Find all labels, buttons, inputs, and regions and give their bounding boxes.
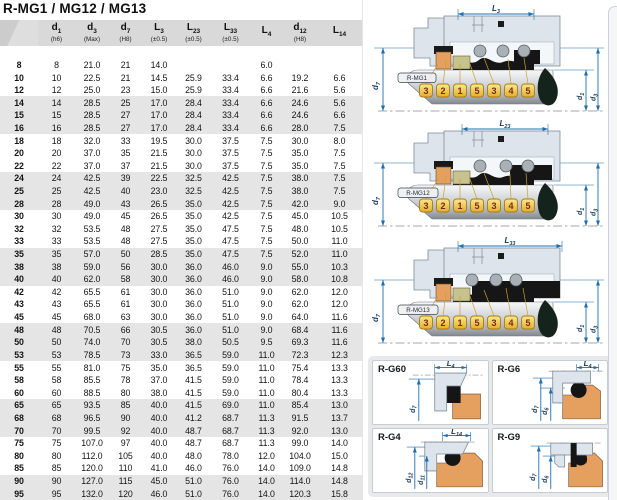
dimension-d7: d7 bbox=[529, 446, 540, 489]
cell-d7: 70 bbox=[109, 337, 142, 347]
cell-d1: 22 bbox=[38, 161, 75, 171]
cell-d7: 37 bbox=[109, 161, 142, 171]
cell-L33: 69.0 bbox=[211, 400, 250, 410]
cell-d1: 14 bbox=[38, 98, 75, 108]
cell-L23: 32.5 bbox=[176, 173, 211, 183]
cell-L33: 33.4 bbox=[211, 73, 250, 83]
col-header-size bbox=[0, 20, 38, 46]
col-header-L3: L3(±0.5) bbox=[142, 20, 176, 46]
cell-L33: 68.7 bbox=[211, 438, 250, 448]
table-row: 75 75 107.0 97 40.0 48.7 68.7 11.3 99.0 … bbox=[0, 437, 362, 450]
cell-L23: 36.0 bbox=[176, 312, 211, 322]
cell-L33: 78.0 bbox=[211, 451, 250, 461]
cell-L33: 47.5 bbox=[211, 236, 250, 246]
cell-L14: 6.6 bbox=[317, 73, 362, 83]
cell-L33: 68.7 bbox=[211, 426, 250, 436]
cell-size: 15 bbox=[0, 110, 38, 120]
cell-L14: 10.5 bbox=[317, 224, 362, 234]
cell-size: 25 bbox=[0, 186, 38, 196]
cell-L4: 9.0 bbox=[250, 312, 283, 322]
svg-text:1: 1 bbox=[457, 86, 462, 96]
cell-d3: 70.5 bbox=[75, 325, 109, 335]
cell-d7: 56 bbox=[109, 262, 142, 272]
svg-text:d12: d12 bbox=[406, 473, 415, 483]
cell-L14: 14.8 bbox=[317, 476, 362, 486]
cell-L4: 11.3 bbox=[250, 426, 283, 436]
svg-text:R-MG12: R-MG12 bbox=[406, 190, 430, 197]
cell-L14: 13.0 bbox=[317, 426, 362, 436]
dimension-d6: d6 bbox=[541, 388, 552, 421]
model-label: R-MG13 bbox=[398, 305, 438, 315]
cell-L4: 6.6 bbox=[250, 110, 283, 120]
table-row: 70 70 99.5 92 40.0 48.7 68.7 11.3 92.0 1… bbox=[0, 424, 362, 437]
cell-L14: 14.8 bbox=[317, 463, 362, 473]
cell-L23: 36.5 bbox=[176, 350, 211, 360]
cell-d12: 62.0 bbox=[283, 299, 317, 309]
cell-L14: 15.0 bbox=[317, 451, 362, 461]
table-row: 53 53 78.5 73 33.0 36.5 59.0 11.0 72.3 1… bbox=[0, 349, 362, 362]
cell-d1: 75 bbox=[38, 438, 75, 448]
cell-size: 18 bbox=[0, 136, 38, 146]
cell-L14: 6.6 bbox=[317, 110, 362, 120]
cell-size: 12 bbox=[0, 85, 38, 95]
cell-L4: 9.5 bbox=[250, 337, 283, 347]
cell-d7: 105 bbox=[109, 451, 142, 461]
cell-L14: 13.3 bbox=[317, 363, 362, 373]
cell-L33: 59.0 bbox=[211, 388, 250, 398]
cell-d7: 27 bbox=[109, 110, 142, 120]
cell-L14: 12.0 bbox=[317, 287, 362, 297]
svg-text:1: 1 bbox=[457, 201, 462, 211]
table-body: 8 8 21.0 21 14.0 6.0 10 10 22.5 21 14.5 … bbox=[0, 46, 362, 500]
svg-text:5: 5 bbox=[525, 318, 530, 328]
svg-text:3: 3 bbox=[423, 201, 428, 211]
svg-text:d7: d7 bbox=[529, 473, 538, 481]
cell-d1: 45 bbox=[38, 312, 75, 322]
cell-d3: 127.0 bbox=[75, 476, 109, 486]
cell-d7: 75 bbox=[109, 363, 142, 373]
cell-L23: 25.9 bbox=[176, 85, 211, 95]
cell-d7: 73 bbox=[109, 350, 142, 360]
cell-d1: 50 bbox=[38, 337, 75, 347]
cell-L3: 23.0 bbox=[142, 186, 176, 196]
cell-L4: 7.5 bbox=[250, 211, 283, 221]
cell-L23: 41.5 bbox=[176, 388, 211, 398]
cell-L4: 9.0 bbox=[250, 299, 283, 309]
svg-text:5: 5 bbox=[474, 86, 479, 96]
cell-L23: 41.5 bbox=[176, 400, 211, 410]
cell-L14: 13.3 bbox=[317, 375, 362, 385]
cell-d1: 65 bbox=[38, 400, 75, 410]
dimension-L4: L4 bbox=[435, 361, 467, 373]
svg-text:L4: L4 bbox=[447, 361, 455, 370]
cell-L23: 41.5 bbox=[176, 375, 211, 385]
cell-d3: 57.0 bbox=[75, 249, 109, 259]
svg-text:L33: L33 bbox=[504, 236, 515, 247]
cell-d3: 68.0 bbox=[75, 312, 109, 322]
cell-L14: 12.3 bbox=[317, 350, 362, 360]
cell-d3: 93.5 bbox=[75, 400, 109, 410]
svg-text:1: 1 bbox=[457, 318, 462, 328]
cell-L3: 17.0 bbox=[142, 123, 176, 133]
seat-ring bbox=[436, 52, 451, 69]
diagram-column: L3 d7 d1 d3 3 2 1 5 3 bbox=[362, 0, 617, 500]
cell-L3: 30.0 bbox=[142, 262, 176, 272]
cell-L23: 36.0 bbox=[176, 299, 211, 309]
cell-L33: 33.4 bbox=[211, 85, 250, 95]
table-row: 32 32 53.5 48 27.5 35.0 47.5 7.5 48.0 10… bbox=[0, 223, 362, 236]
r-g6-card: R-G6 L4 bbox=[492, 360, 609, 425]
cell-L23: 30.0 bbox=[176, 136, 211, 146]
cell-d3: 65.5 bbox=[75, 287, 109, 297]
table-row: 25 25 42.5 40 23.0 32.5 42.5 7.5 38.0 7.… bbox=[0, 185, 362, 198]
svg-text:d1: d1 bbox=[577, 325, 586, 332]
cell-d12: 58.0 bbox=[283, 274, 317, 284]
cell-L4: 11.3 bbox=[250, 438, 283, 448]
cell-L14: 11.0 bbox=[317, 249, 362, 259]
cell-L33: 59.0 bbox=[211, 350, 250, 360]
cell-L3: 14.0 bbox=[142, 60, 176, 70]
cell-L23: 48.7 bbox=[176, 426, 211, 436]
cell-d12: 35.0 bbox=[283, 161, 317, 171]
cell-L3: 21.5 bbox=[142, 148, 176, 158]
r-mg13-cross-section-diagram: L33 d7 d1 d3 3 2 1 5 3 bbox=[368, 236, 610, 350]
cell-L23: 36.0 bbox=[176, 287, 211, 297]
svg-text:d7: d7 bbox=[531, 405, 540, 413]
cell-L4: 7.5 bbox=[250, 199, 283, 209]
cell-d12: 38.0 bbox=[283, 173, 317, 183]
cell-L4: 6.0 bbox=[250, 60, 283, 70]
cell-d7: 23 bbox=[109, 85, 142, 95]
cell-d7: 78 bbox=[109, 375, 142, 385]
cell-d12: 62.0 bbox=[283, 287, 317, 297]
cell-d12: 52.0 bbox=[283, 249, 317, 259]
table-row: 55 55 81.0 75 35.0 36.5 59.0 11.0 75.4 1… bbox=[0, 361, 362, 374]
cell-d7: 63 bbox=[109, 312, 142, 322]
cell-d1: 12 bbox=[38, 85, 75, 95]
cell-d3: 120.0 bbox=[75, 463, 109, 473]
cell-d7: 92 bbox=[109, 426, 142, 436]
cell-L3: 30.5 bbox=[142, 325, 176, 335]
cell-d3: 28.5 bbox=[75, 123, 109, 133]
cell-d12: 78.4 bbox=[283, 375, 317, 385]
svg-text:2: 2 bbox=[440, 318, 445, 328]
cell-d1: 95 bbox=[38, 489, 75, 499]
cell-d7: 21 bbox=[109, 73, 142, 83]
cell-d1: 8 bbox=[38, 60, 75, 70]
svg-text:d1: d1 bbox=[577, 93, 586, 100]
cell-d7: 33 bbox=[109, 136, 142, 146]
cell-d7: 40 bbox=[109, 186, 142, 196]
cell-L3: 40.0 bbox=[142, 451, 176, 461]
cell-L4: 6.6 bbox=[250, 98, 283, 108]
cell-d7: 85 bbox=[109, 400, 142, 410]
cell-L4: 7.5 bbox=[250, 136, 283, 146]
col-header-d1: d1(h6) bbox=[38, 20, 75, 46]
cell-L23: 35.0 bbox=[176, 236, 211, 246]
cell-d3: 59.0 bbox=[75, 262, 109, 272]
cell-size: 24 bbox=[0, 173, 38, 183]
cell-L3: 30.0 bbox=[142, 274, 176, 284]
cell-size: 70 bbox=[0, 426, 38, 436]
svg-text:L23: L23 bbox=[499, 119, 510, 130]
dimension-d7: d7 bbox=[410, 379, 421, 421]
cell-L4: 11.0 bbox=[250, 363, 283, 373]
table-row: 20 20 37.0 35 21.5 30.0 37.5 7.5 35.0 7.… bbox=[0, 147, 362, 160]
cell-L14: 12.0 bbox=[317, 299, 362, 309]
cell-d12: 68.4 bbox=[283, 325, 317, 335]
cell-size: 55 bbox=[0, 363, 38, 373]
cell-L23: 48.0 bbox=[176, 451, 211, 461]
seal-face bbox=[453, 56, 470, 69]
cell-d1: 80 bbox=[38, 451, 75, 461]
cell-L33: 37.5 bbox=[211, 136, 250, 146]
cell-size: 50 bbox=[0, 337, 38, 347]
cell-L4: 12.0 bbox=[250, 451, 283, 461]
cell-L14: 7.5 bbox=[317, 123, 362, 133]
cell-d7: 27 bbox=[109, 123, 142, 133]
cell-size: 43 bbox=[0, 299, 38, 309]
cell-L14: 7.5 bbox=[317, 161, 362, 171]
cell-L33: 47.5 bbox=[211, 249, 250, 259]
cell-size: 32 bbox=[0, 224, 38, 234]
col-header-d12: d12(H8) bbox=[283, 20, 317, 46]
cell-L14: 14.0 bbox=[317, 438, 362, 448]
cell-L14: 5.6 bbox=[317, 85, 362, 95]
cell-d12: 38.0 bbox=[283, 186, 317, 196]
cell-d12: 50.0 bbox=[283, 236, 317, 246]
cell-L14: 11.6 bbox=[317, 312, 362, 322]
cell-d12: 75.4 bbox=[283, 363, 317, 373]
cell-size: 80 bbox=[0, 451, 38, 461]
cell-d1: 18 bbox=[38, 136, 75, 146]
cell-L4: 11.3 bbox=[250, 413, 283, 423]
cell-d3: 99.5 bbox=[75, 426, 109, 436]
cell-d7: 25 bbox=[109, 98, 142, 108]
cell-d1: 68 bbox=[38, 413, 75, 423]
dimension-d6: d6 bbox=[541, 456, 552, 489]
cell-L33: 33.4 bbox=[211, 110, 250, 120]
cell-d1: 24 bbox=[38, 173, 75, 183]
drive-pin bbox=[498, 21, 504, 27]
svg-text:d7: d7 bbox=[410, 405, 419, 413]
cell-L14: 11.0 bbox=[317, 236, 362, 246]
dimension-L4: L4 bbox=[576, 361, 598, 371]
col-header-L4: L4 bbox=[250, 20, 283, 46]
svg-text:4: 4 bbox=[508, 201, 513, 211]
cell-L4: 7.5 bbox=[250, 186, 283, 196]
cell-d1: 38 bbox=[38, 262, 75, 272]
cell-size: 8 bbox=[0, 60, 38, 70]
svg-text:3: 3 bbox=[491, 201, 496, 211]
cell-L4: 11.0 bbox=[250, 388, 283, 398]
cell-d1: 90 bbox=[38, 476, 75, 486]
cell-d7: 80 bbox=[109, 388, 142, 398]
cell-d3: 53.5 bbox=[75, 236, 109, 246]
cell-L4: 7.5 bbox=[250, 236, 283, 246]
cell-L14: 11.6 bbox=[317, 337, 362, 347]
cell-d3: 88.5 bbox=[75, 388, 109, 398]
cell-L3: 28.5 bbox=[142, 249, 176, 259]
cell-d3: 112.0 bbox=[75, 451, 109, 461]
cell-d1: 32 bbox=[38, 224, 75, 234]
table-row: 10 10 22.5 21 14.5 25.9 33.4 6.6 19.2 6.… bbox=[0, 71, 362, 84]
cell-L3: 35.0 bbox=[142, 363, 176, 373]
cell-d12: 85.4 bbox=[283, 400, 317, 410]
cell-L14: 5.6 bbox=[317, 98, 362, 108]
cell-d12: 109.0 bbox=[283, 463, 317, 473]
cell-d7: 110 bbox=[109, 463, 142, 473]
cell-L33: 76.0 bbox=[211, 489, 250, 499]
cell-L3: 33.0 bbox=[142, 350, 176, 360]
cell-d1: 70 bbox=[38, 426, 75, 436]
cell-L4: 7.5 bbox=[250, 224, 283, 234]
cell-size: 33 bbox=[0, 236, 38, 246]
cell-L14: 7.5 bbox=[317, 148, 362, 158]
cell-d1: 40 bbox=[38, 274, 75, 284]
cell-L33: 76.0 bbox=[211, 463, 250, 473]
cell-L23: 28.4 bbox=[176, 123, 211, 133]
table-row: 50 50 74.0 70 30.5 38.0 50.5 9.5 69.3 11… bbox=[0, 336, 362, 349]
cell-d12: 55.0 bbox=[283, 262, 317, 272]
cell-L23: 28.4 bbox=[176, 98, 211, 108]
cell-L23: 46.0 bbox=[176, 463, 211, 473]
cell-L14: 9.0 bbox=[317, 199, 362, 209]
cell-d12: 99.0 bbox=[283, 438, 317, 448]
cell-d3: 96.5 bbox=[75, 413, 109, 423]
cell-L4: 14.0 bbox=[250, 476, 283, 486]
cell-d12: 30.0 bbox=[283, 136, 317, 146]
cell-L3: 45.0 bbox=[142, 476, 176, 486]
table-row: 16 16 28.5 27 17.0 28.4 33.4 6.6 28.0 7.… bbox=[0, 122, 362, 135]
table-row: 12 12 25.0 23 15.0 25.9 33.4 6.6 21.6 5.… bbox=[0, 84, 362, 97]
dimension-L14: L14 bbox=[443, 429, 471, 441]
cell-L4: 7.5 bbox=[250, 148, 283, 158]
svg-text:d7: d7 bbox=[371, 81, 382, 90]
cell-d3: 21.0 bbox=[75, 60, 109, 70]
cell-L23: 30.0 bbox=[176, 161, 211, 171]
cell-L23: 32.5 bbox=[176, 186, 211, 196]
svg-text:d11: d11 bbox=[418, 475, 427, 485]
model-label: R-MG12 bbox=[398, 188, 438, 198]
cell-L3: 26.5 bbox=[142, 211, 176, 221]
cell-d12: 91.5 bbox=[283, 413, 317, 423]
table-row: 58 58 85.5 78 37.0 41.5 59.0 11.0 78.4 1… bbox=[0, 374, 362, 387]
cell-L14: 7.5 bbox=[317, 173, 362, 183]
cell-L23: 48.7 bbox=[176, 438, 211, 448]
svg-text:5: 5 bbox=[474, 318, 479, 328]
cell-d12: 48.0 bbox=[283, 224, 317, 234]
cell-d3: 37.0 bbox=[75, 161, 109, 171]
cell-d3: 42.5 bbox=[75, 186, 109, 196]
col-header-d3: d3(Max) bbox=[75, 20, 109, 46]
cell-size: 53 bbox=[0, 350, 38, 360]
cell-d3: 85.5 bbox=[75, 375, 109, 385]
cell-L3: 41.0 bbox=[142, 463, 176, 473]
cell-L4: 6.6 bbox=[250, 85, 283, 95]
cell-size: 42 bbox=[0, 287, 38, 297]
r-g9-card: R-G9 d7 bbox=[492, 428, 609, 493]
cell-size: 85 bbox=[0, 463, 38, 473]
cell-d3: 53.5 bbox=[75, 224, 109, 234]
cell-d3: 132.0 bbox=[75, 489, 109, 499]
r-g60-card: R-G60 L4 d7 bbox=[372, 360, 489, 425]
cell-d12: 45.0 bbox=[283, 211, 317, 221]
col-header-d7: d7(H8) bbox=[109, 20, 142, 46]
cell-L3: 40.0 bbox=[142, 426, 176, 436]
cell-L14: 11.6 bbox=[317, 325, 362, 335]
cell-L33: 33.4 bbox=[211, 98, 250, 108]
cell-L33: 46.0 bbox=[211, 262, 250, 272]
table-row: 45 45 68.0 63 30.0 36.0 51.0 9.0 64.0 11… bbox=[0, 311, 362, 324]
dimension-d11: d11 bbox=[418, 456, 429, 489]
cell-L23: 35.0 bbox=[176, 249, 211, 259]
cell-L23: 35.0 bbox=[176, 211, 211, 221]
cell-d12: 21.6 bbox=[283, 85, 317, 95]
cell-d1: 48 bbox=[38, 325, 75, 335]
seat-model-label: R-G60 bbox=[378, 364, 406, 375]
cell-d3: 25.0 bbox=[75, 85, 109, 95]
cell-d12: 64.0 bbox=[283, 312, 317, 322]
table-row: 42 42 65.5 61 30.0 36.0 51.0 9.0 62.0 12… bbox=[0, 286, 362, 299]
cell-d12: 92.0 bbox=[283, 426, 317, 436]
cell-L33: 46.0 bbox=[211, 274, 250, 284]
cell-L4: 14.0 bbox=[250, 489, 283, 499]
model-label: R-MG1 bbox=[398, 73, 436, 83]
table-row: 80 80 112.0 105 40.0 48.0 78.0 12.0 104.… bbox=[0, 450, 362, 463]
cell-L23: 38.0 bbox=[176, 337, 211, 347]
dimension-d1-d3: d1 d3 bbox=[554, 163, 600, 226]
dimension-d7: d7 bbox=[371, 280, 385, 343]
dimension-d1-d3: d1 d3 bbox=[554, 280, 600, 343]
table-row: 40 40 62.0 58 30.0 36.0 46.0 9.0 58.0 10… bbox=[0, 273, 362, 286]
cell-d1: 16 bbox=[38, 123, 75, 133]
cell-L23: 51.0 bbox=[176, 489, 211, 499]
cell-L3: 30.0 bbox=[142, 299, 176, 309]
cell-L23: 36.0 bbox=[176, 262, 211, 272]
cell-d3: 22.5 bbox=[75, 73, 109, 83]
cell-d12: 72.3 bbox=[283, 350, 317, 360]
cell-L33: 51.0 bbox=[211, 312, 250, 322]
table-row: 15 15 28.5 27 17.0 28.4 33.4 6.6 24.6 6.… bbox=[0, 109, 362, 122]
cell-L23: 36.0 bbox=[176, 274, 211, 284]
cell-L23: 41.2 bbox=[176, 413, 211, 423]
cell-d3: 49.0 bbox=[75, 211, 109, 221]
cell-size: 35 bbox=[0, 249, 38, 259]
cell-d12: 24.6 bbox=[283, 110, 317, 120]
cell-d12: 114.0 bbox=[283, 476, 317, 486]
cell-L4: 11.0 bbox=[250, 375, 283, 385]
svg-text:5: 5 bbox=[525, 201, 530, 211]
cell-L4: 9.0 bbox=[250, 274, 283, 284]
cell-d7: 35 bbox=[109, 148, 142, 158]
cell-L14: 10.8 bbox=[317, 274, 362, 284]
cell-size: 38 bbox=[0, 262, 38, 272]
cell-L4: 14.0 bbox=[250, 463, 283, 473]
cell-d3: 49.0 bbox=[75, 199, 109, 209]
cell-size: 60 bbox=[0, 388, 38, 398]
cell-size: 90 bbox=[0, 476, 38, 486]
cell-L14: 10.3 bbox=[317, 262, 362, 272]
cell-d1: 30 bbox=[38, 211, 75, 221]
cell-L3: 37.0 bbox=[142, 375, 176, 385]
svg-text:L14: L14 bbox=[451, 429, 462, 438]
cell-d1: 60 bbox=[38, 388, 75, 398]
cell-d12: 19.2 bbox=[283, 73, 317, 83]
cell-d7: 43 bbox=[109, 199, 142, 209]
seat-variant-panel: R-G60 L4 d7 bbox=[368, 356, 612, 497]
cell-L33: 37.5 bbox=[211, 148, 250, 158]
